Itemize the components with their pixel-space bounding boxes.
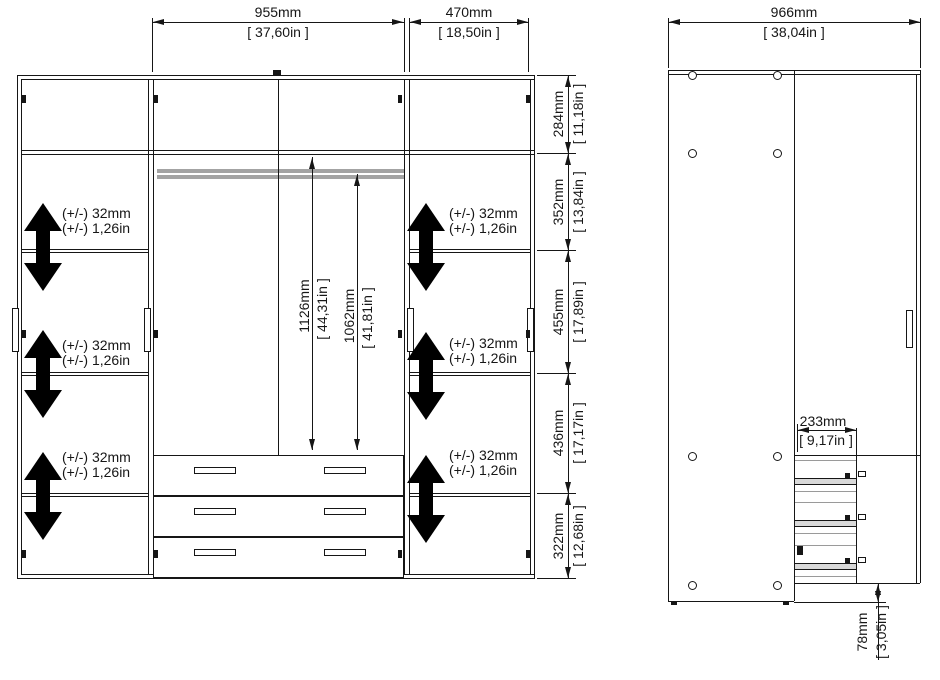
dim-955-mm: 955mm (255, 4, 302, 20)
drawer-front-3 (153, 537, 404, 578)
hdim-284-in: [ 11,18in ] (570, 84, 586, 144)
fitting-hole (773, 581, 782, 590)
dim-470-mm: 470mm (446, 4, 493, 20)
dim-line-1126 (312, 157, 313, 450)
dim-arrowhead (565, 482, 571, 493)
hdim-322-mm: 322mm (550, 513, 566, 560)
fitting-hole (773, 149, 782, 158)
hinge-mark (526, 95, 530, 103)
hinge-mark (398, 550, 402, 558)
side-drawer-divider (794, 455, 920, 456)
fitting-hole (688, 581, 697, 590)
adjust-in: (+/-) 1,26in (449, 351, 518, 366)
adjust-mm: (+/-) 32mm (449, 206, 518, 221)
hdim-436-in: [ 17,17in ] (570, 402, 586, 464)
dim-966-in: [ 38,04in ] (763, 24, 825, 40)
dim-arrowhead (392, 19, 403, 25)
dim-line-955 (153, 22, 404, 23)
dim-966-mm: 966mm (771, 4, 818, 20)
adjust-mm: (+/-) 32mm (62, 338, 131, 353)
shelf-adjust-arrow (24, 330, 62, 418)
shelf-adjust-label: (+/-) 32mm (+/-) 1,26in (449, 448, 518, 478)
fitting-hole (773, 452, 782, 461)
dim-arrowhead (565, 251, 571, 262)
side-left-edge (668, 70, 669, 601)
shelf-adjust-arrow (24, 452, 62, 540)
dim-233-mm: 233mm (800, 413, 847, 429)
dim-1062-mm: 1062mm (341, 289, 357, 343)
rail-roller (845, 515, 850, 521)
drawer-side-top (795, 502, 856, 503)
drawer3-handle-left (194, 549, 236, 556)
arrow-shaft (419, 481, 433, 517)
dim-arrowhead (354, 175, 360, 186)
dim-arrowhead (565, 239, 571, 250)
dim-arrowhead (909, 19, 920, 25)
adjust-mm: (+/-) 32mm (62, 206, 131, 221)
hdim-322-in: [ 12,68in ] (570, 505, 586, 567)
door-handle-outer-left (12, 308, 19, 352)
dim-470-in: [ 18,50in ] (438, 24, 500, 40)
drawer2-handle-left (194, 508, 236, 515)
adjust-mm: (+/-) 32mm (449, 336, 518, 351)
drawer-front-2 (153, 496, 404, 537)
top-hinge-notch (273, 70, 281, 76)
arrow-shaft (419, 229, 433, 265)
ext-line (528, 18, 529, 72)
hinge-mark (398, 330, 402, 338)
foot-mark (671, 601, 677, 605)
ext-line (537, 578, 576, 579)
drawer-side-top (795, 545, 856, 546)
dim-955-in: [ 37,60in ] (247, 24, 309, 40)
side-door-inner-edge (916, 74, 917, 583)
shelf-adjust-arrow (24, 203, 62, 291)
adjust-in: (+/-) 1,26in (62, 221, 131, 236)
slide-clip (858, 557, 866, 563)
dim-arrowhead (309, 439, 315, 450)
dim-arrowhead (565, 567, 571, 578)
slide-clip (858, 514, 866, 520)
dim-1126-in: [ 44,31in ] (314, 278, 330, 340)
hinge-mark (22, 95, 26, 103)
hdim-455-in: [ 17,89in ] (570, 281, 586, 343)
drawer-rail-bottom (795, 526, 856, 527)
rail-roller (845, 473, 850, 479)
ext-line (668, 18, 669, 68)
hinge-mark (154, 95, 158, 103)
shelf-adjust-label: (+/-) 32mm (+/-) 1,26in (62, 338, 131, 368)
shelf-adjust-label: (+/-) 32mm (+/-) 1,26in (62, 206, 131, 236)
drawer-side-bottom (795, 491, 856, 492)
adjust-in: (+/-) 1,26in (449, 221, 518, 236)
hanging-rail-bar-top (157, 169, 404, 173)
dim-arrowhead (565, 154, 571, 165)
shelf-adjust-arrow (407, 203, 445, 291)
dim-1126-mm: 1126mm (296, 279, 312, 332)
fitting-hole (688, 452, 697, 461)
ext-line (920, 18, 921, 68)
hanging-rail-bar-bottom (157, 175, 404, 179)
dim-arrowhead (669, 19, 680, 25)
dim-arrowhead (565, 362, 571, 373)
side-right-edge (920, 70, 921, 583)
dim-233-in: [ 9,17in ] (799, 432, 853, 448)
adjust-in: (+/-) 1,26in (62, 353, 131, 368)
arrow-shaft (419, 358, 433, 394)
hdim-352-in: [ 13,84in ] (570, 171, 586, 233)
hinge-mark (526, 330, 530, 338)
side-door-handle (906, 310, 913, 348)
ext-line (409, 18, 410, 72)
rail-roller (845, 558, 850, 564)
shelf-adjust-arrow (407, 332, 445, 420)
adjust-in: (+/-) 1,26in (449, 463, 518, 478)
door-handle-left-partition (144, 308, 151, 352)
dim-arrowhead (410, 19, 421, 25)
drawer-rail-bottom (795, 484, 856, 485)
fitting-hole (773, 71, 782, 80)
shelf-adjust-label: (+/-) 32mm (+/-) 1,26in (449, 206, 518, 236)
dim-arrowhead (153, 19, 164, 25)
shelf-adjust-arrow (407, 455, 445, 543)
ext-line (794, 602, 886, 603)
dim-78-mm: 78mm (854, 613, 870, 652)
drawer-side-bottom (795, 576, 856, 577)
arrow-shaft (36, 478, 50, 514)
hinge-mark (398, 95, 402, 103)
drawer1-handle-left (194, 467, 236, 474)
hdim-455-mm: 455mm (550, 289, 566, 336)
adjust-in: (+/-) 1,26in (62, 465, 131, 480)
side-left-bottom-edge (668, 601, 794, 602)
front-right-wall-outer (534, 75, 535, 578)
drawer-front-plane (856, 428, 857, 583)
shelf-adjust-label: (+/-) 32mm (+/-) 1,26in (449, 336, 518, 366)
foot-mark (783, 601, 789, 605)
drawer2-handle-right (324, 508, 366, 515)
dim-line-966 (669, 22, 920, 23)
drawer-side-top (795, 460, 856, 461)
arrow-shaft (36, 356, 50, 392)
hdim-352-mm: 352mm (550, 179, 566, 226)
fitting-hole (688, 149, 697, 158)
hdim-284-mm: 284mm (550, 91, 566, 138)
dim-arrowhead (565, 374, 571, 385)
hdim-436-mm: 436mm (550, 410, 566, 457)
dim-line-1062 (357, 174, 358, 450)
dim-78-in: [ 3,05in ] (873, 605, 889, 659)
dim-1062-in: [ 41,81in ] (359, 287, 375, 349)
wardrobe-technical-drawing: (+/-) 32mm (+/-) 1,26in (+/-) 32mm (+/-)… (0, 0, 940, 680)
dim-arrowhead (565, 494, 571, 505)
drawer-side-bottom (795, 533, 856, 534)
center-door-split-line (278, 79, 279, 455)
side-right-bottom-edge (794, 583, 920, 584)
drawer-front-1 (153, 455, 404, 496)
hinge-mark (154, 550, 158, 558)
dim-arrowhead (309, 158, 315, 169)
drawer1-handle-right (324, 467, 366, 474)
dim-line-470 (410, 22, 528, 23)
drawer3-handle-right (324, 549, 366, 556)
hinge-mark (154, 330, 158, 338)
hinge-mark (22, 550, 26, 558)
ext-line (404, 18, 405, 72)
dim-arrowhead (875, 591, 881, 602)
hinge-mark (526, 550, 530, 558)
drawer-rail-bottom (795, 569, 856, 570)
dim-arrowhead (517, 19, 528, 25)
front-bottom-edge-outer (17, 578, 535, 579)
shelf-adjust-label: (+/-) 32mm (+/-) 1,26in (62, 450, 131, 480)
rail-bracket (797, 546, 803, 555)
adjust-mm: (+/-) 32mm (449, 448, 518, 463)
slide-clip (858, 471, 866, 477)
fitting-hole (688, 71, 697, 80)
ext-line (152, 18, 153, 72)
adjust-mm: (+/-) 32mm (62, 450, 131, 465)
arrow-shaft (36, 229, 50, 265)
dim-arrowhead (354, 439, 360, 450)
